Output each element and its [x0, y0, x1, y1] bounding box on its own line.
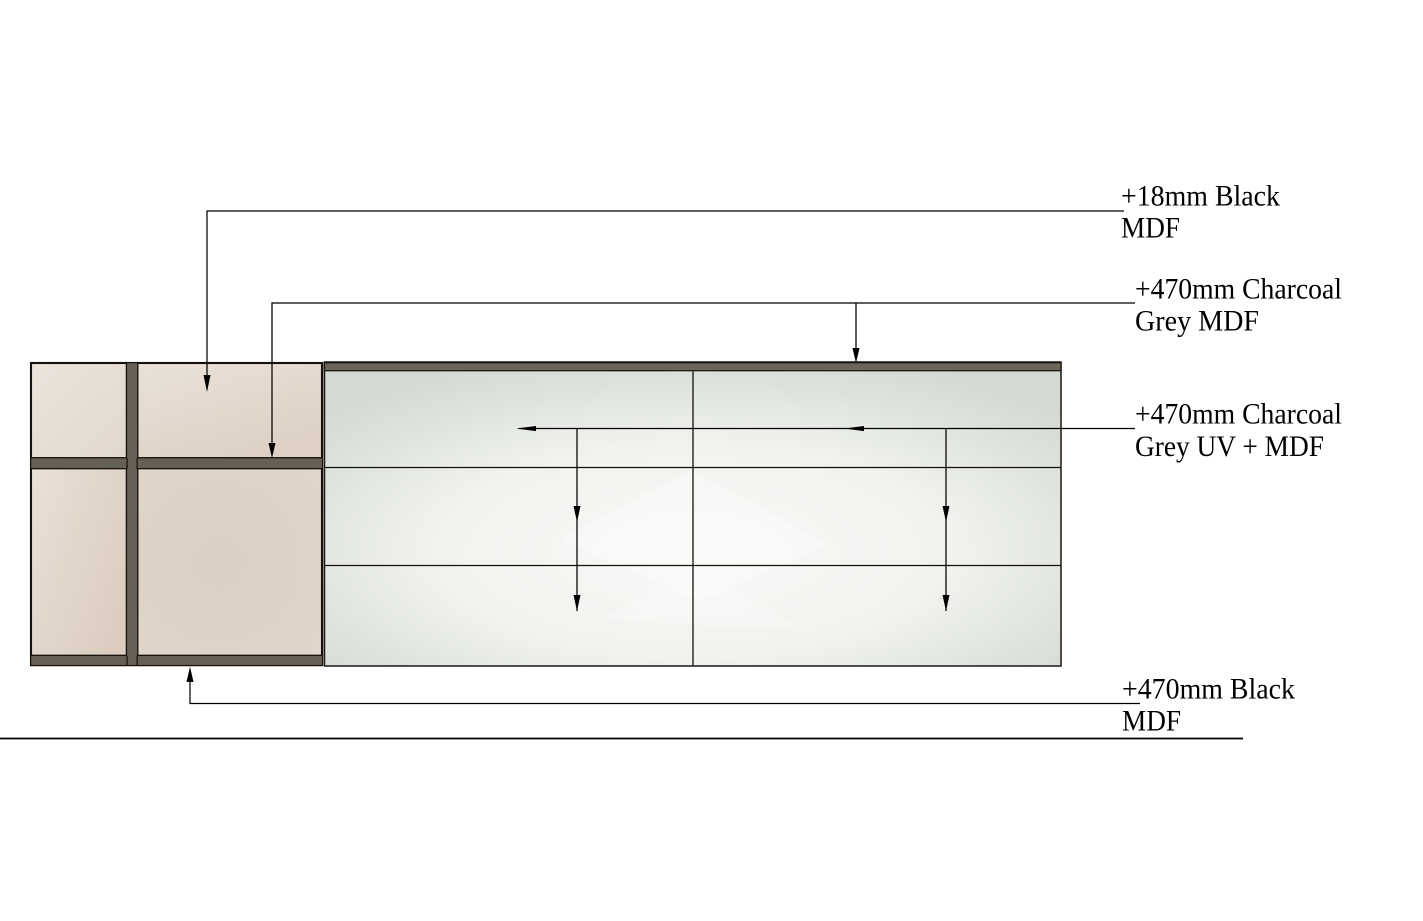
- svg-text:+470mm Charcoal: +470mm Charcoal: [1135, 273, 1342, 306]
- svg-text:+470mm Charcoal: +470mm Charcoal: [1135, 398, 1342, 431]
- svg-text:+18mm Black: +18mm Black: [1121, 180, 1280, 213]
- svg-text:MDF: MDF: [1122, 705, 1181, 738]
- svg-text:Grey MDF: Grey MDF: [1135, 305, 1259, 338]
- svg-text:Grey UV + MDF: Grey UV + MDF: [1135, 430, 1324, 463]
- svg-text:MDF: MDF: [1121, 212, 1180, 245]
- svg-text:+470mm Black: +470mm Black: [1122, 673, 1295, 706]
